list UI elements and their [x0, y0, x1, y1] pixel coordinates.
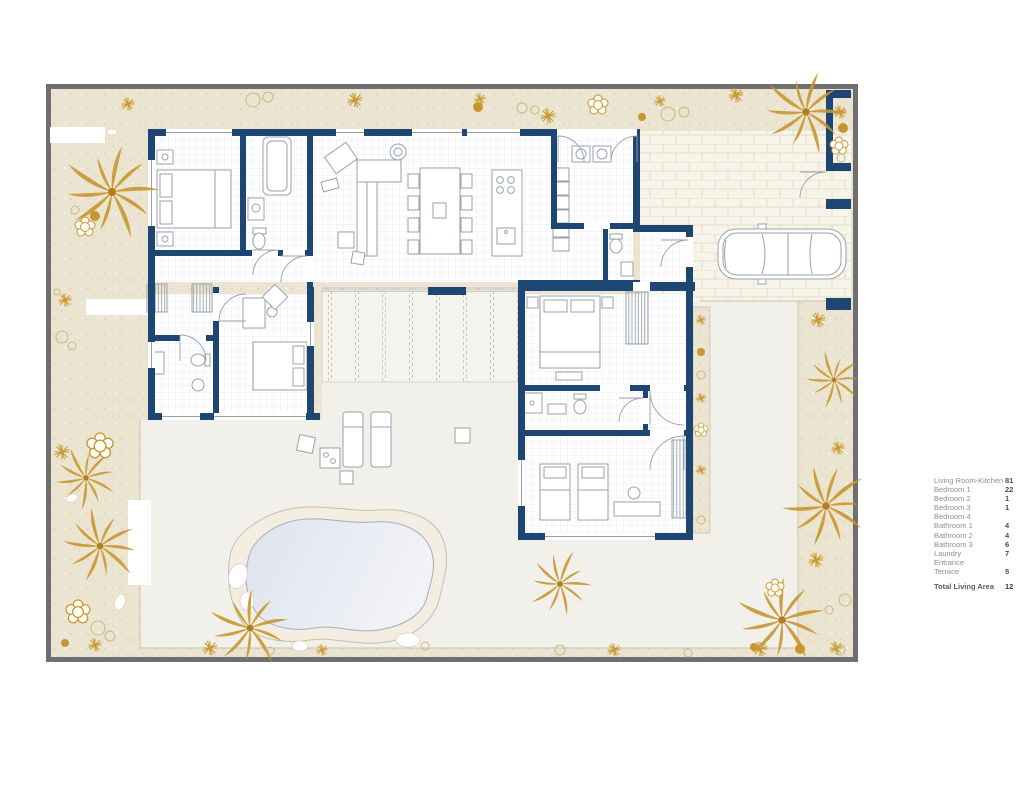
legend-row: Entrance [934, 558, 1024, 567]
legend-row: Laundry7 [934, 549, 1024, 558]
car [718, 224, 846, 284]
pool-water [246, 519, 433, 631]
legend-row: Bedroom 21 [934, 494, 1024, 503]
room-area-value: 5 [1005, 567, 1009, 576]
room-label: Bathroom 2 [934, 531, 973, 540]
room-area-value: 6 [1005, 540, 1009, 549]
legend-row: Living Room-Kitchen81 [934, 476, 1024, 485]
floor-plan-page: Living Room-Kitchen81 Bedroom 122 Bedroo… [0, 0, 1024, 800]
room-label: Living Room-Kitchen [934, 476, 1003, 485]
room-label: Bedroom 1 [934, 485, 971, 494]
room-label: Terrace [934, 567, 959, 576]
room-area-value: 1 [1005, 494, 1009, 503]
floor-plan-drawing [0, 0, 1024, 800]
total-area-value: 12 [1005, 582, 1013, 591]
room-label: Entrance [934, 558, 964, 567]
room-label: Bedroom 2 [934, 494, 971, 503]
legend-row: Bathroom 14 [934, 521, 1024, 530]
legend-row: Bathroom 24 [934, 531, 1024, 540]
room-label: Bedroom 3 [934, 503, 971, 512]
room-area-legend: Living Room-Kitchen81 Bedroom 122 Bedroo… [934, 476, 1024, 591]
deck-porch [322, 288, 518, 382]
legend-row: Terrace5 [934, 567, 1024, 576]
room-area-value: 81 [1005, 476, 1013, 485]
wardrobe [626, 292, 648, 344]
room-label: Bathroom 1 [934, 521, 973, 530]
room-area-value: 1 [1005, 503, 1009, 512]
legend-row: Bathroom 36 [934, 540, 1024, 549]
legend-row: Bedroom 122 [934, 485, 1024, 494]
wardrobe [192, 284, 212, 312]
total-label: Total Living Area [934, 582, 994, 591]
room-area-value: 7 [1005, 549, 1009, 558]
legend-row: Bedroom 4 [934, 512, 1024, 521]
room-area-value: 4 [1005, 531, 1009, 540]
legend-row: Bedroom 31 [934, 503, 1024, 512]
room-label: Bathroom 3 [934, 540, 973, 549]
room-area-value: 4 [1005, 521, 1009, 530]
room-area-value: 22 [1005, 485, 1013, 494]
kitchen-island [492, 170, 522, 256]
legend-total-row: Total Living Area12 [934, 582, 1024, 591]
planter-strip [693, 307, 710, 533]
bedroom-3-furniture [527, 296, 613, 380]
room-label: Laundry [934, 549, 961, 558]
room-label: Bedroom 4 [934, 512, 971, 521]
